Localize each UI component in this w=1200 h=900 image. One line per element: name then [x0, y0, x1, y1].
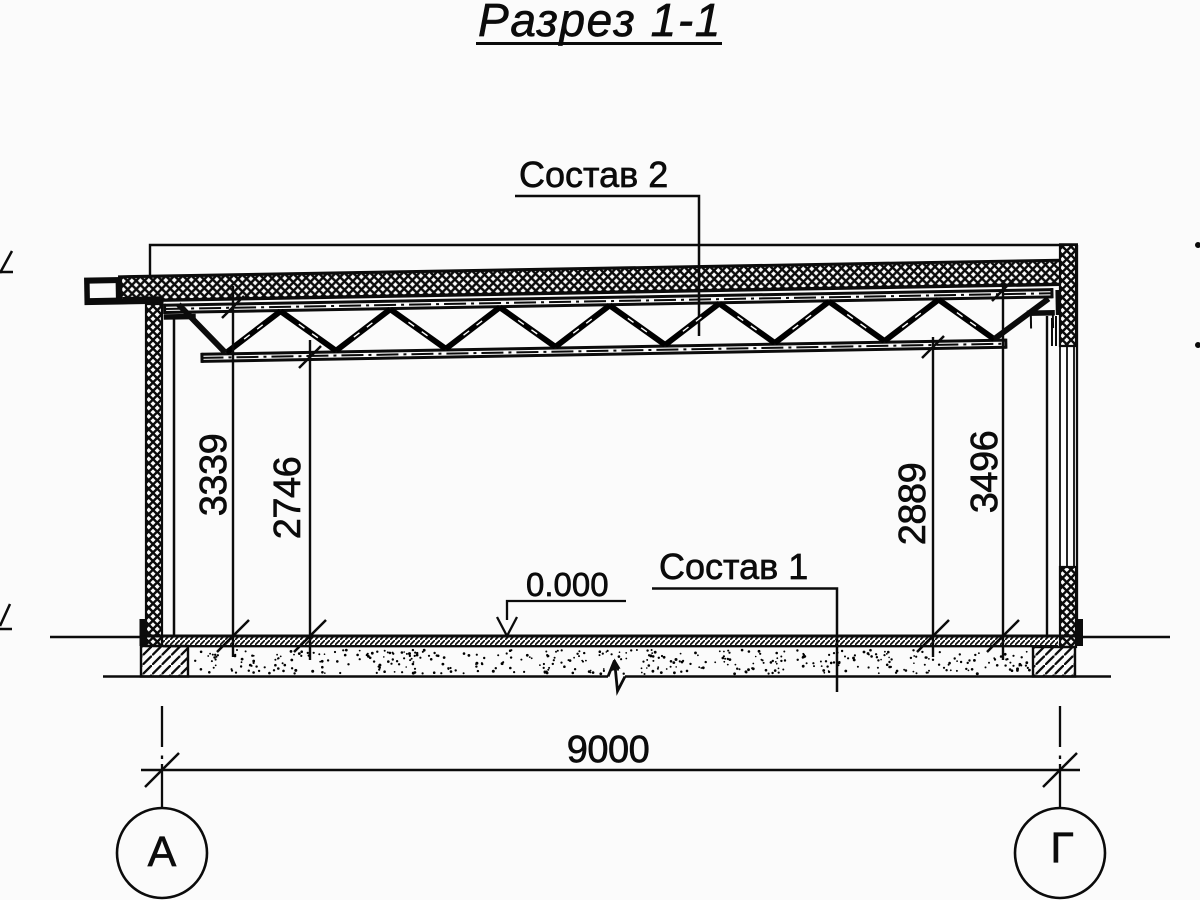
- svg-text:Разрез 1-1: Разрез 1-1: [478, 0, 722, 46]
- svg-text:Состав 1: Состав 1: [659, 546, 808, 587]
- svg-text:2746: 2746: [267, 457, 309, 540]
- svg-text:А: А: [148, 828, 177, 876]
- svg-text:Состав 2: Состав 2: [519, 154, 668, 195]
- svg-text:3496: 3496: [964, 431, 1006, 514]
- svg-text:Г: Г: [1050, 824, 1073, 872]
- svg-text:9000: 9000: [567, 729, 650, 771]
- svg-text:2889: 2889: [892, 463, 934, 546]
- svg-text:0.000: 0.000: [526, 566, 609, 603]
- svg-text:3339: 3339: [193, 434, 235, 517]
